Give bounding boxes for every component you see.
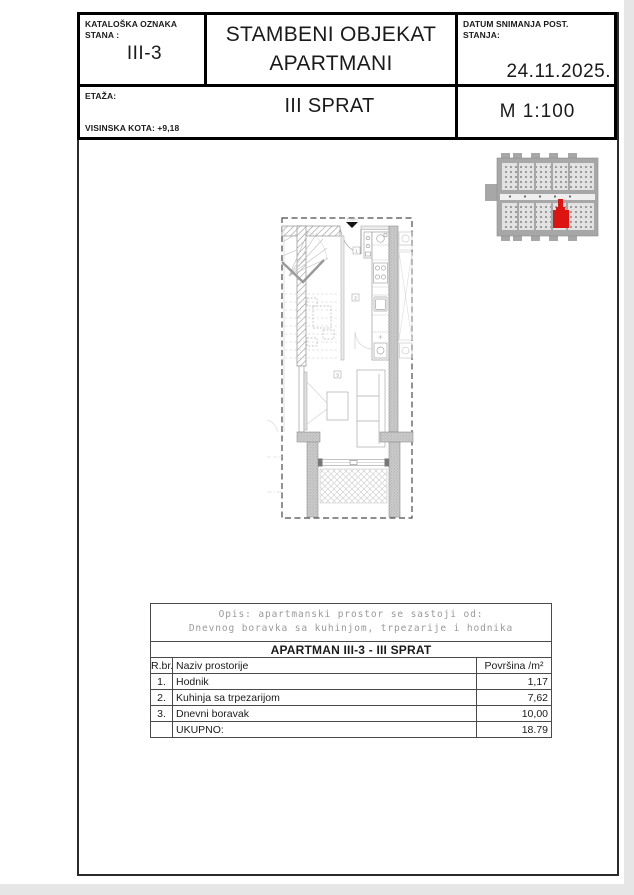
drawing-sheet-page: KATALOŠKA OZNAKA STANA : III-3 STAMBENI … <box>0 0 634 895</box>
survey-date-cell: DATUM SNIMANJA POST. STANJA: 24.11.2025. <box>458 15 617 84</box>
table-total-row: UKUPNO: 18.79 <box>151 721 551 737</box>
scale-cell: M 1:100 <box>458 87 617 137</box>
catalog-cell: KATALOŠKA OZNAKA STANA : III-3 <box>80 15 204 84</box>
title-block: KATALOŠKA OZNAKA STANA : III-3 STAMBENI … <box>77 12 617 140</box>
page-edge-right <box>624 0 634 895</box>
page-edge-bottom <box>0 884 634 895</box>
room-labels: 1 2 3 <box>334 247 360 378</box>
room-label-1: 1 <box>355 248 358 253</box>
row-area: 1,17 <box>477 674 551 689</box>
balcony <box>320 469 387 503</box>
dashed-furniture <box>307 298 334 346</box>
floor-label: ETAŽA: <box>85 91 116 102</box>
key-plan-building <box>485 153 598 241</box>
stair-right-wall <box>341 236 344 360</box>
row-name: Dnevni boravak <box>173 706 477 721</box>
total-label: UKUPNO: <box>173 722 477 737</box>
scale-value: M 1:100 <box>500 101 576 123</box>
neighbour-fixtures <box>399 232 412 358</box>
table-row: 3. Dnevni boravak 10,00 <box>151 705 551 721</box>
project-title-line1: STAMBENI OBJEKAT <box>226 21 437 49</box>
stair-steps-dashed <box>285 294 339 358</box>
header-num: R.br. <box>151 658 173 673</box>
table-row: 2. Kuhinja sa trpezarijom 7,62 <box>151 689 551 705</box>
coffee-table <box>327 392 348 420</box>
project-title-line2: APARTMANI <box>269 50 392 78</box>
table-description: Opis: apartmanski prostor se sastoji od:… <box>151 604 551 641</box>
row-num: 1. <box>151 674 173 689</box>
room-label-3: 3 <box>336 372 339 377</box>
kitchen-living-door <box>355 332 371 349</box>
survey-date-value: 24.11.2025. <box>507 61 611 83</box>
balcony-window <box>318 459 389 467</box>
floor-value: III SPRAT <box>204 95 455 118</box>
top-wall-kitchen <box>361 226 389 230</box>
total-value: 18.79 <box>477 722 551 737</box>
row-name: Hodnik <box>173 674 477 689</box>
survey-date-label: DATUM SNIMANJA POST. STANJA: <box>463 19 617 40</box>
neighbour-traces <box>267 420 282 492</box>
kitchen-counter <box>372 232 389 360</box>
project-title-cell: STAMBENI OBJEKAT APARTMANI <box>207 15 455 84</box>
entrance-width-label: 1.00m <box>346 217 358 222</box>
row-name: Kuhinja sa trpezarijom <box>173 690 477 705</box>
table-row: 1. Hodnik 1,17 <box>151 673 551 689</box>
catalog-label: KATALOŠKA OZNAKA STANA : <box>85 19 204 40</box>
room-label-2: 2 <box>354 295 357 300</box>
row-area: 7,62 <box>477 690 551 705</box>
living-left-wall <box>299 366 304 432</box>
key-plan <box>484 150 600 244</box>
row-num: 2. <box>151 690 173 705</box>
table-header-row: R.br. Naziv prostorije Površina /m² <box>151 657 551 673</box>
catalog-value: III-3 <box>85 43 204 65</box>
row-num: 3. <box>151 706 173 721</box>
floor-plan: 1.00m <box>265 210 425 530</box>
area-table: Opis: apartmanski prostor se sastoji od:… <box>150 603 552 738</box>
total-num <box>151 722 173 737</box>
row-area: 10,00 <box>477 706 551 721</box>
key-plan-corridor <box>500 194 595 200</box>
table-title: APARTMAN III-3 - III SPRAT <box>151 641 551 657</box>
entrance-arrow-icon <box>346 222 358 228</box>
top-wall <box>282 226 340 236</box>
washing-machine <box>374 343 387 358</box>
header-area: Površina /m² <box>477 658 551 673</box>
elevation-label: VISINSKA KOTA: +9,18 <box>85 123 179 134</box>
floor-cell: ETAŽA: III SPRAT VISINSKA KOTA: +9,18 <box>80 87 455 137</box>
party-wall <box>389 226 398 432</box>
tv-shelf <box>304 372 307 430</box>
header-name: Naziv prostorije <box>173 658 477 673</box>
